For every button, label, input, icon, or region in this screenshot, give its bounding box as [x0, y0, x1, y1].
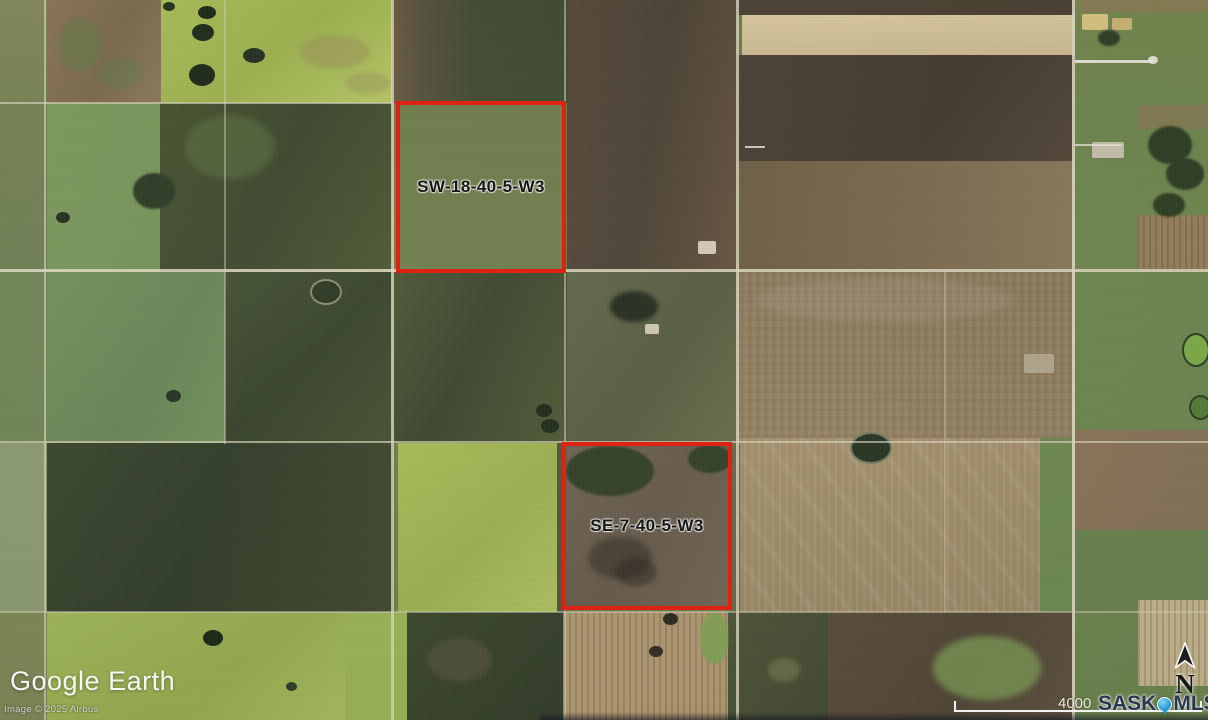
terrain-blotch — [345, 72, 391, 94]
pond — [56, 212, 70, 223]
tree-cluster — [610, 291, 658, 322]
terrain-blotch — [98, 58, 142, 90]
pond — [310, 279, 342, 305]
google-earth-logo-earth: Earth — [108, 666, 175, 697]
terrain-patch — [1137, 215, 1208, 272]
terrain-blotch — [755, 278, 1015, 322]
terrain-patch — [47, 443, 393, 612]
north-compass: N — [1166, 642, 1204, 704]
terrain-blotch — [300, 35, 370, 69]
sask-mls-logo-sask: SASK — [1098, 692, 1156, 716]
parcel-label: SE-7-40-5-W3 — [590, 516, 703, 536]
tree-cluster — [286, 682, 297, 691]
pond — [163, 2, 175, 11]
terrain-patch — [737, 0, 1075, 15]
road-line — [1148, 56, 1158, 64]
terrain-patch — [737, 438, 1040, 612]
parcel-label: SW-18-40-5-W3 — [417, 177, 545, 197]
pond — [536, 404, 552, 417]
pond — [198, 6, 216, 19]
tree-cluster — [1153, 193, 1185, 217]
terrain-blotch — [428, 638, 492, 682]
terrain-blotch — [58, 18, 102, 72]
north-arrow-icon — [1172, 642, 1198, 670]
terrain-blotch — [933, 636, 1041, 700]
road-line — [745, 146, 765, 148]
farmstead — [698, 241, 716, 254]
tree-cluster — [133, 173, 175, 209]
pond — [649, 646, 663, 657]
pond — [541, 419, 559, 433]
scale-bar-tick-left — [954, 701, 956, 712]
farmstead — [1112, 18, 1132, 30]
parcel-outline-se-7-40-5-w3: SE-7-40-5-W3 — [562, 442, 732, 610]
terrain-patch — [737, 161, 1075, 272]
terrain-patch — [392, 0, 567, 103]
terrain-patch — [1075, 430, 1208, 530]
road-line — [224, 0, 226, 444]
farmstead — [1082, 14, 1108, 30]
pond — [189, 64, 215, 86]
google-earth-logo: Google Earth — [10, 666, 175, 697]
terrain-patch — [345, 612, 407, 720]
pond — [166, 390, 181, 402]
road-line — [1075, 144, 1121, 146]
terrain-patch — [742, 15, 1075, 55]
terrain-blotch — [768, 658, 800, 682]
terrain-patch — [225, 272, 392, 443]
pond — [243, 48, 265, 63]
pond — [1182, 333, 1208, 367]
terrain-patch — [0, 443, 47, 612]
terrain-patch — [0, 272, 47, 443]
tree-cluster — [1098, 30, 1120, 46]
satellite-map[interactable]: SW-18-40-5-W3 SE-7-40-5-W3 Google Earth … — [0, 0, 1208, 720]
terrain-patch — [0, 0, 47, 272]
google-earth-logo-google: Google — [10, 666, 100, 697]
farmstead — [645, 324, 659, 334]
terrain-patch — [1080, 0, 1208, 12]
terrain-patch — [737, 55, 1075, 161]
terrain-patch — [1040, 438, 1075, 612]
terrain-patch — [392, 272, 567, 443]
pond — [850, 432, 892, 464]
pond — [663, 613, 678, 625]
pond — [1189, 395, 1208, 420]
road-line — [1075, 60, 1153, 63]
terrain-patch — [47, 272, 225, 443]
pond — [203, 630, 223, 646]
scale-value: 4000 — [1058, 695, 1091, 712]
terrain-patch — [398, 443, 557, 612]
parcel-outline-sw-18-40-5-w3: SW-18-40-5-W3 — [396, 101, 566, 273]
tree-cluster — [1166, 158, 1204, 190]
terrain-patch — [567, 0, 737, 272]
farmstead — [1024, 354, 1054, 373]
road-line — [0, 102, 392, 104]
road-line — [0, 611, 1208, 613]
pond — [192, 24, 214, 41]
attribution-text: Image © 2025 Airbus — [4, 704, 99, 715]
north-label: N — [1175, 670, 1195, 698]
road-line — [0, 269, 1208, 272]
terrain-blotch — [700, 612, 728, 664]
terrain-blotch — [185, 115, 275, 179]
